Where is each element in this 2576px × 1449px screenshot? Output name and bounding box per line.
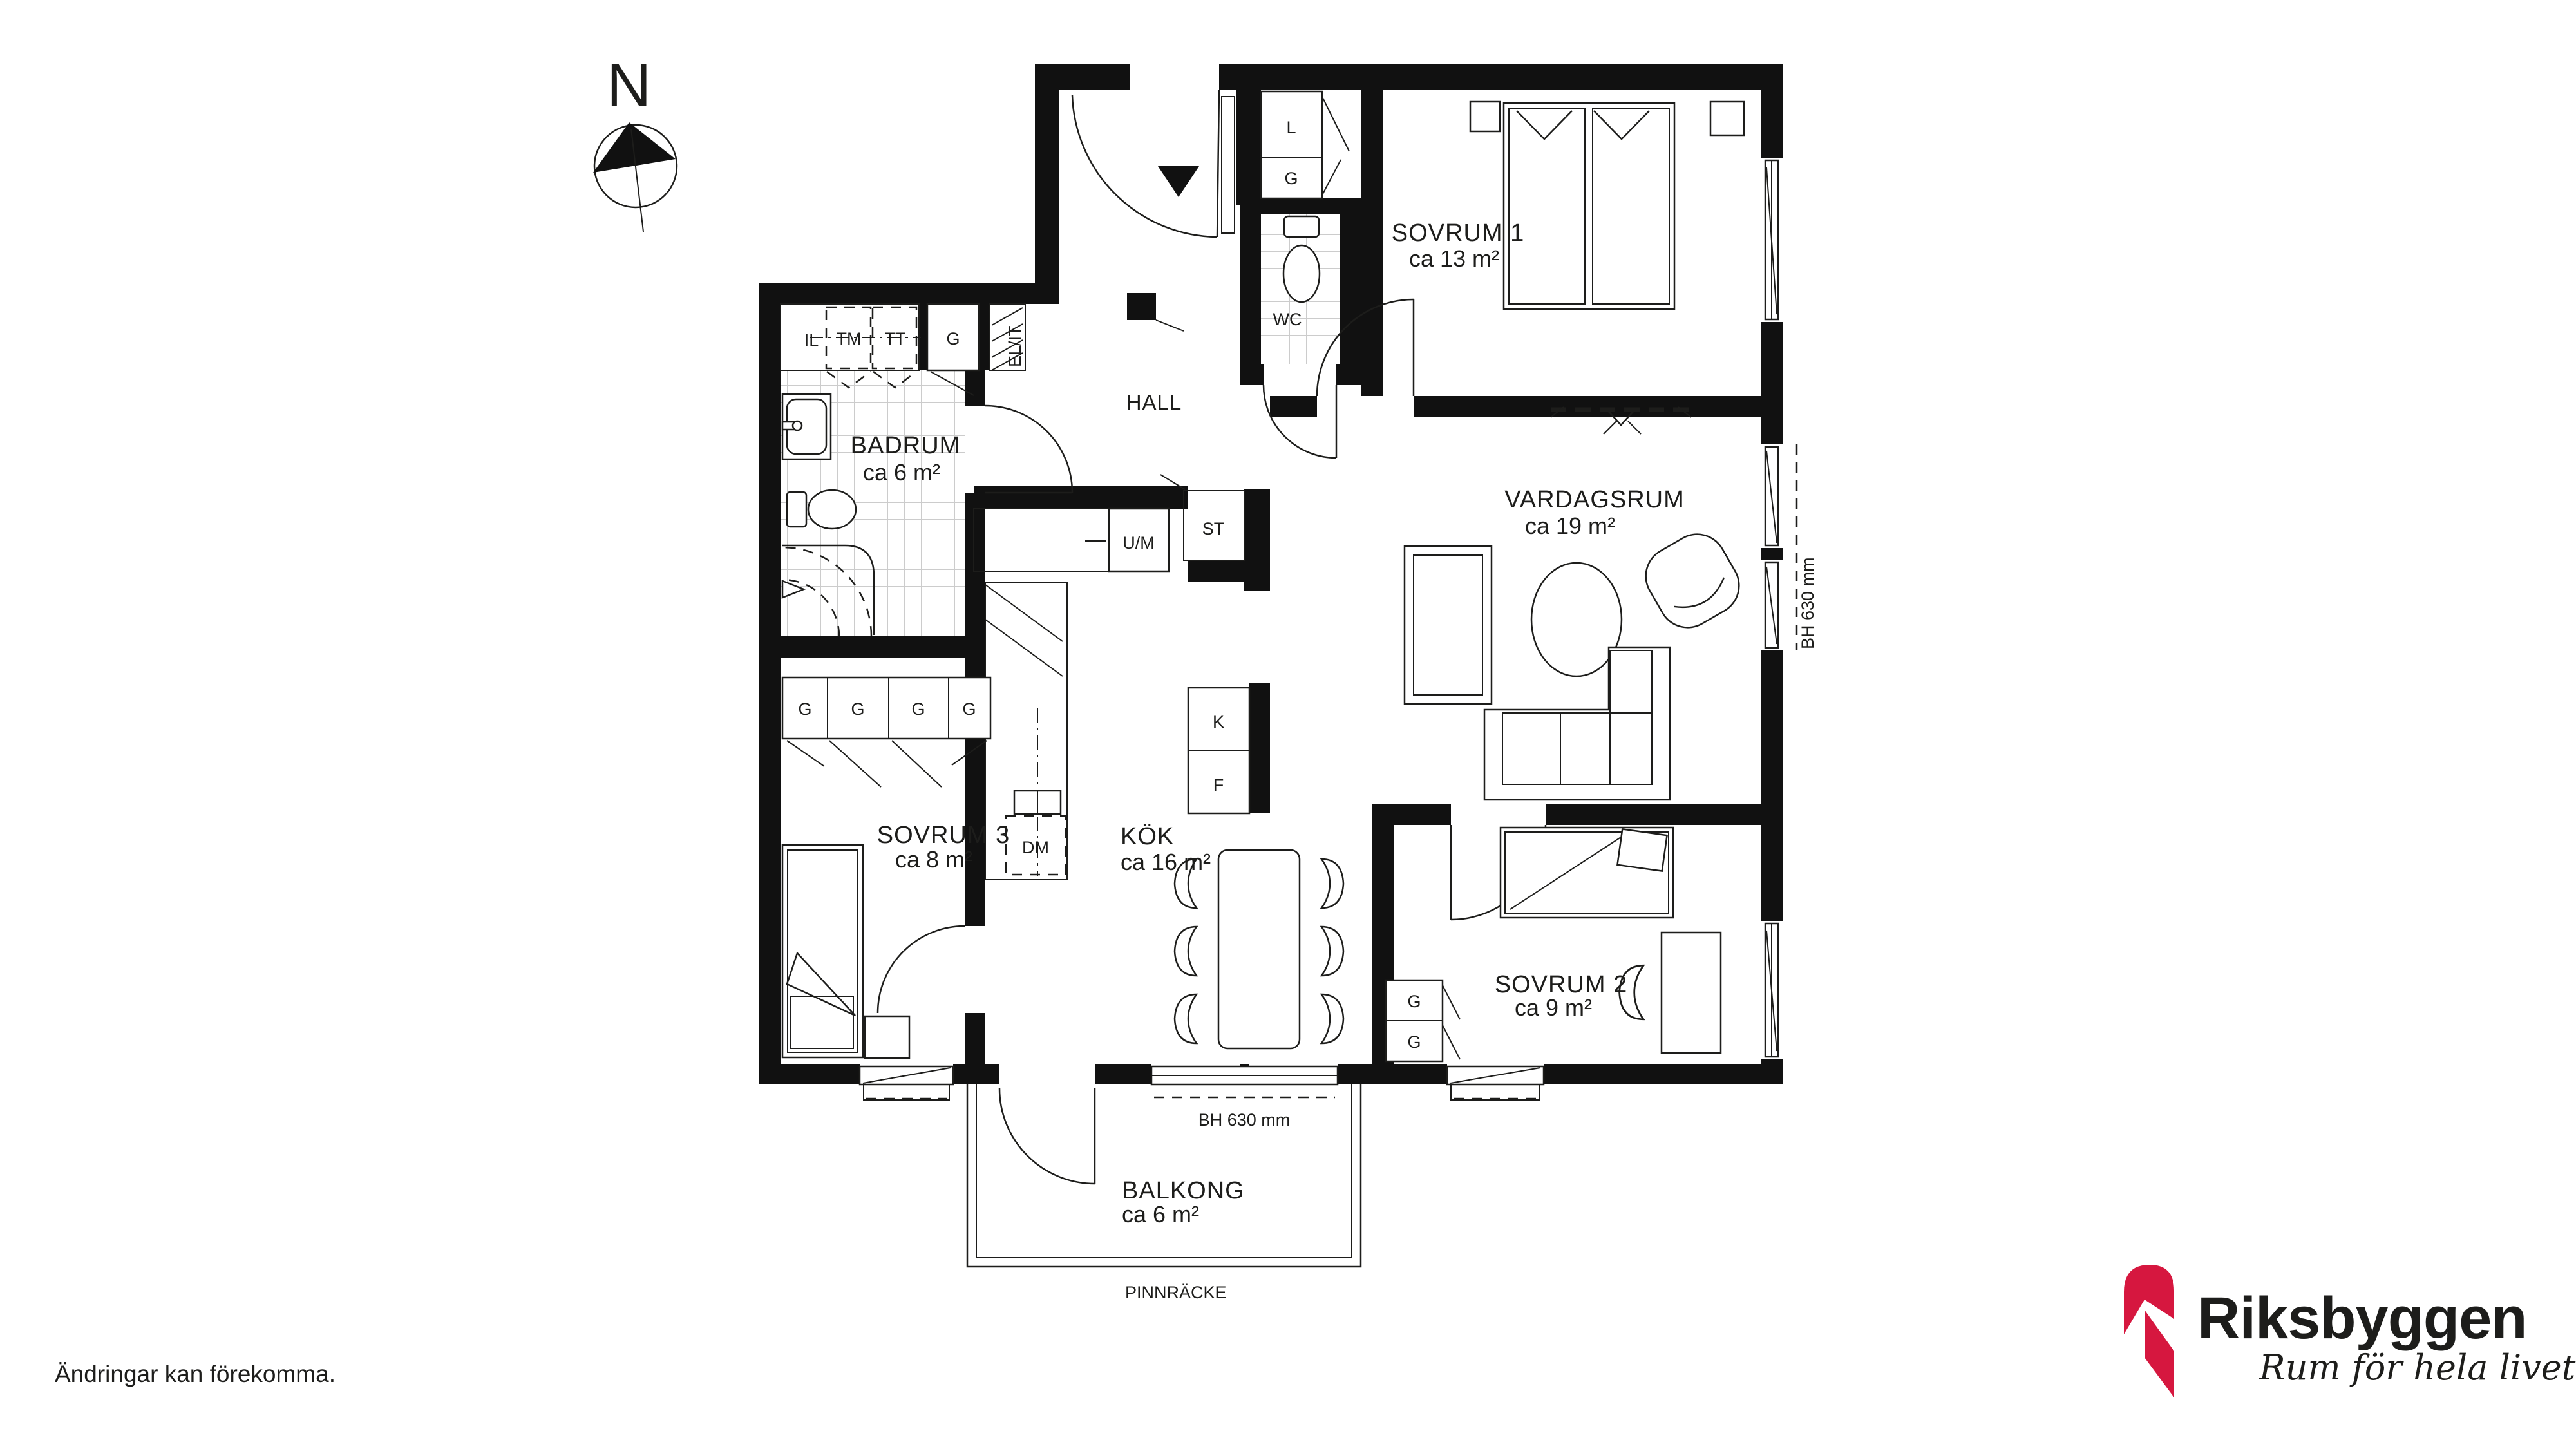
floorplan-page: N SOVRUM 1 ca 13 m² VARDAGSRUM ca 19 m² … — [0, 0, 2576, 1449]
entrance-door — [1072, 90, 1235, 237]
label-el-it: EL/IT — [1005, 325, 1025, 367]
riksbyggen-logo: Riksbyggen Rum för hela livet — [2124, 1265, 2576, 1397]
north-arrow-icon — [593, 122, 676, 173]
label-sovrum2-area: ca 9 m² — [1515, 994, 1592, 1021]
wc-door — [1264, 385, 1336, 458]
label-badrum-area: ca 6 m² — [863, 459, 940, 486]
label-wardrobe: G — [911, 699, 925, 719]
window-sovrum2-bottom — [1447, 1066, 1544, 1100]
badrum-toilet — [787, 490, 856, 529]
armchair — [1635, 524, 1750, 638]
label-kok: KÖK — [1121, 823, 1174, 850]
sovrum3-bed — [782, 845, 863, 1057]
label-washer: TM — [837, 329, 862, 348]
label-balkong-area: ca 6 m² — [1122, 1201, 1199, 1227]
label-wardrobe: G — [798, 699, 811, 719]
label-linen: L — [1286, 118, 1296, 137]
dining-table — [1218, 850, 1300, 1048]
label-freezer: F — [1213, 775, 1224, 795]
sovrum3-closets — [782, 677, 990, 787]
label-wardrobe: G — [1284, 169, 1298, 188]
label-kok-area: ca 16 m² — [1121, 849, 1211, 875]
window-kok-bottom — [1151, 1066, 1338, 1097]
sovrum1-double-bed — [1504, 103, 1674, 309]
sovrum2-bed — [1501, 828, 1673, 918]
logo-mark-tail — [2145, 1310, 2174, 1397]
label-cleaning: ST — [1202, 519, 1225, 538]
label-sovrum3-area: ca 8 m² — [895, 846, 972, 873]
label-oven-micro: U/M — [1122, 533, 1155, 553]
kitchen-counter-top — [974, 509, 1109, 571]
floorplan-drawing: N SOVRUM 1 ca 13 m² VARDAGSRUM ca 19 m² … — [0, 0, 2576, 1449]
label-wardrobe: G — [1407, 1032, 1421, 1052]
entrance-arrow-icon — [1158, 166, 1199, 197]
label-il: IL — [804, 330, 819, 350]
label-wc: WC — [1273, 310, 1302, 329]
nightstand — [1710, 102, 1744, 135]
pillow-icon — [1617, 829, 1667, 871]
north-compass: N — [593, 51, 677, 232]
bedside-table — [865, 1016, 909, 1058]
tv-bench — [1405, 546, 1492, 704]
window-sovrum2-right — [1765, 923, 1778, 1057]
window-sovrum3-bottom — [860, 1066, 953, 1100]
label-bh-right: BH 630 mm — [1798, 557, 1817, 649]
label-sovrum3: SOVRUM 3 — [877, 822, 1010, 849]
label-vardagsrum-area: ca 19 m² — [1525, 513, 1615, 539]
label-bh-bottom: BH 630 mm — [1198, 1110, 1291, 1130]
label-sovrum1-area: ca 13 m² — [1409, 245, 1499, 272]
window-sovrum1-right — [1765, 160, 1778, 319]
window-vardagsrum-right — [1765, 444, 1797, 650]
label-sovrum1: SOVRUM 1 — [1392, 220, 1524, 247]
entry-closets — [1261, 91, 1349, 198]
label-wardrobe: G — [1407, 992, 1421, 1011]
label-wardrobe: G — [851, 699, 864, 719]
label-hall: HALL — [1126, 390, 1182, 414]
label-fridge: K — [1213, 712, 1224, 732]
balcony-door — [999, 1088, 1095, 1184]
label-vardagsrum: VARDAGSRUM — [1504, 486, 1685, 513]
disclaimer-text: Ändringar kan förekomma. — [55, 1361, 336, 1387]
label-dryer: TT — [885, 329, 906, 348]
label-wardrobe: G — [946, 329, 960, 348]
label-badrum: BADRUM — [851, 432, 961, 459]
badrum-door — [985, 406, 1072, 493]
compass-n-label: N — [607, 51, 651, 120]
label-balkong: BALKONG — [1122, 1177, 1245, 1204]
nightstand — [1470, 102, 1500, 131]
label-pinnracke: PINNRÄCKE — [1125, 1283, 1227, 1302]
sovrum2-closets — [1386, 980, 1460, 1061]
badrum-sink — [782, 394, 831, 459]
sovrum3-door — [878, 926, 965, 1013]
wc-toilet — [1283, 216, 1320, 302]
sovrum2-desk — [1620, 933, 1721, 1053]
balcony-outline — [967, 1084, 1361, 1267]
logo-tagline-text: Rum för hela livet — [2259, 1347, 2576, 1388]
logo-brand-text: Riksbyggen — [2197, 1285, 2526, 1351]
hall-door-swing — [1156, 320, 1184, 331]
label-dishwasher: DM — [1022, 838, 1049, 857]
label-wardrobe: G — [962, 699, 976, 719]
